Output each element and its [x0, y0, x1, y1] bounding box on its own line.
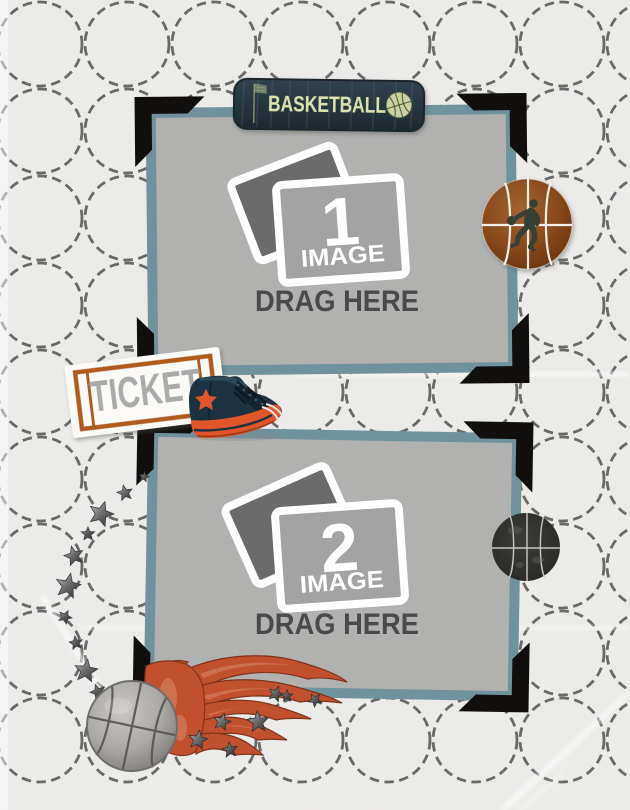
svg-text:DRAG HERE: DRAG HERE [255, 608, 419, 641]
svg-text:DRAG HERE: DRAG HERE [255, 285, 419, 318]
svg-text:BASKETBALL: BASKETBALL [268, 91, 386, 118]
